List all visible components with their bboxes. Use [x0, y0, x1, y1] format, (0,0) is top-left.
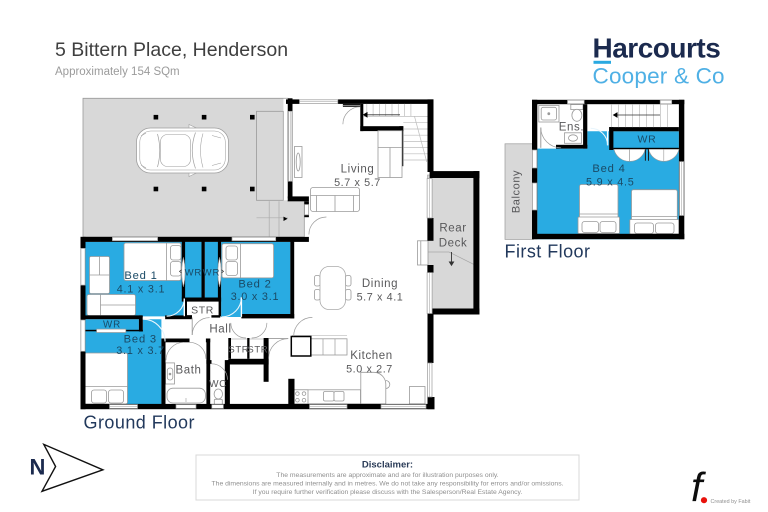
- svg-text:5.7 x 4.1: 5.7 x 4.1: [357, 291, 404, 303]
- svg-text:Dining: Dining: [362, 278, 398, 290]
- svg-text:Created by Fabit: Created by Fabit: [711, 499, 751, 505]
- svg-text:5.0 x 2.7: 5.0 x 2.7: [346, 363, 393, 375]
- svg-text:Bed 3: Bed 3: [124, 333, 157, 345]
- svg-text:Bed 1: Bed 1: [124, 270, 157, 282]
- svg-text:STR: STR: [247, 345, 268, 356]
- svg-text:3.0 x 3.1: 3.0 x 3.1: [231, 291, 280, 303]
- svg-text:Bed 2: Bed 2: [238, 278, 271, 290]
- svg-text:4.1 x 3.1: 4.1 x 3.1: [117, 283, 166, 295]
- svg-text:Deck: Deck: [439, 237, 468, 249]
- svg-text:WC: WC: [209, 379, 227, 390]
- svg-text:STR: STR: [191, 304, 214, 316]
- svg-text:Ground Floor: Ground Floor: [84, 413, 195, 433]
- svg-text:WR: WR: [103, 320, 121, 331]
- svg-text:5.7 x 5.7: 5.7 x 5.7: [334, 177, 381, 189]
- svg-text:Hall: Hall: [209, 323, 231, 335]
- svg-text:Cooper & Co: Cooper & Co: [593, 64, 725, 89]
- svg-text:N: N: [30, 455, 46, 480]
- svg-text:The dimensions are measured in: The dimensions are measured internally a…: [212, 481, 564, 488]
- svg-text:If you require further verific: If you require further verification plea…: [253, 489, 523, 496]
- svg-text:WR: WR: [185, 268, 202, 279]
- svg-text:Harcourts: Harcourts: [593, 33, 721, 64]
- svg-text:5 Bittern Place, Henderson: 5 Bittern Place, Henderson: [55, 39, 288, 61]
- svg-text:STR: STR: [228, 345, 249, 356]
- svg-text:Balcony: Balcony: [510, 170, 522, 213]
- svg-text:WR: WR: [637, 134, 656, 146]
- svg-text:WR: WR: [203, 268, 220, 279]
- svg-text:Disclaimer:: Disclaimer:: [362, 460, 413, 471]
- svg-text:5.9 x 4.5: 5.9 x 4.5: [586, 177, 635, 189]
- svg-text:Bed 4: Bed 4: [592, 163, 625, 175]
- svg-text:Approximately 154 SQm: Approximately 154 SQm: [55, 66, 180, 78]
- svg-text:First Floor: First Floor: [505, 242, 591, 262]
- svg-text:The measurements are approxima: The measurements are approximate and are…: [276, 472, 499, 479]
- svg-text:Living: Living: [341, 163, 375, 175]
- svg-text:Ens.: Ens.: [559, 122, 584, 134]
- svg-text:Bath: Bath: [175, 365, 201, 377]
- svg-text:3.1 x 3.7: 3.1 x 3.7: [116, 345, 165, 357]
- svg-text:Kitchen: Kitchen: [350, 350, 393, 362]
- svg-text:Rear: Rear: [439, 222, 466, 234]
